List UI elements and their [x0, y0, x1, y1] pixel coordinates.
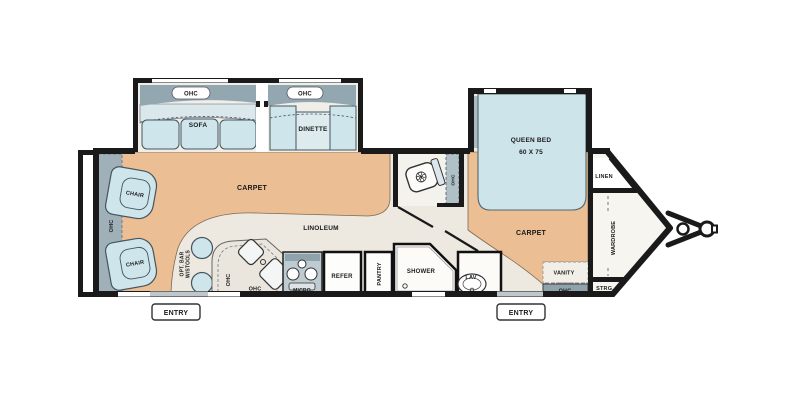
sofa-label: SOFA: [189, 122, 208, 129]
floorplan-drawing: OHC OHC SOFA DINETTE QUEEN BED 60 X 75 L…: [0, 0, 800, 400]
entry-left-label: ENTRY: [164, 310, 189, 317]
dinette-bench-left: [270, 106, 296, 150]
hitch-jack-wheel: [678, 224, 689, 235]
sofa-window: [152, 79, 228, 83]
burner-left: [287, 268, 299, 280]
sofa-cushion-1: [142, 120, 179, 149]
opt-bar-label-group: OPT. BAR W/STOOLS: [180, 249, 192, 278]
refer-label: REFER: [331, 274, 353, 280]
carpet-bedroom-label: CARPET: [516, 230, 547, 237]
dinette-window: [279, 79, 341, 83]
entry-right-doorway: [497, 292, 543, 297]
rear-cap-bottom: [78, 292, 98, 297]
vanity-label: VANITY: [554, 271, 575, 277]
divider-post-2: [264, 101, 268, 107]
burner-small: [298, 260, 306, 268]
ohc-bath-label: OHC: [450, 174, 456, 186]
top-wall-left-segment: [93, 148, 135, 154]
bedroom-partition-wall: [588, 152, 593, 296]
ohc-bath-label-group: OHC: [450, 174, 456, 186]
bar-stool-1: [192, 238, 213, 259]
rear-bumper-bar: [78, 150, 83, 297]
burner-right: [305, 268, 317, 280]
dinette-label: DINETTE: [298, 126, 328, 133]
ohc-dinette-label: OHC: [298, 92, 312, 98]
linen-bottom-wall: [593, 188, 637, 193]
sofa-cushion-3: [220, 120, 256, 149]
queen-bed-size-label: 60 X 75: [519, 149, 543, 156]
ohc-counter-h-label: OHC: [249, 287, 262, 293]
slide-divider-gap: [256, 83, 268, 152]
bath-wall-left: [393, 152, 398, 207]
wardrobe-label: WARDROBE: [611, 221, 617, 255]
divider-post-1: [256, 101, 260, 107]
strg-label: STRG.: [596, 286, 614, 292]
front-slide-wall-right: [358, 78, 363, 152]
ohc-rear-label-group: OHC: [109, 220, 115, 233]
floorplan-canvas: OHC OHC SOFA DINETTE QUEEN BED 60 X 75 L…: [0, 0, 800, 400]
carpet-living-label: CARPET: [237, 185, 268, 192]
hitch-coupler-latch: [712, 226, 717, 233]
bottom-window-1: [118, 292, 150, 297]
bed-window-left: [484, 89, 496, 93]
opt-bar-label-2: W/STOOLS: [186, 249, 192, 278]
dinette-bench-right: [330, 106, 356, 150]
wardrobe-label-group: WARDROBE: [606, 211, 617, 265]
lav-label: LAV: [465, 275, 476, 281]
bath-wall-bottom-stub: [437, 203, 460, 207]
ohc-counter-v-label: OHC: [226, 274, 232, 287]
bottom-window-3: [412, 292, 445, 297]
pantry-label: PANTRY: [377, 262, 383, 285]
pantry-label-group: PANTRY: [377, 262, 383, 285]
top-wall-center-segment: [361, 148, 470, 154]
ohc-bedroom-label: OHC: [559, 289, 572, 295]
entry-right-label: ENTRY: [509, 310, 534, 317]
rear-window-slot: [84, 157, 92, 291]
front-slide-wall-left: [133, 78, 138, 152]
ohc-counter-v-group: OHC: [226, 274, 232, 287]
range-stove: [283, 252, 322, 293]
micro-label: MICRO: [293, 288, 311, 294]
wardrobe-bottom-wall: [593, 277, 624, 282]
queen-bed-label: QUEEN BED: [511, 137, 552, 144]
slide-divider: [256, 83, 268, 152]
bed-window-right: [564, 89, 576, 93]
bed-slide-wall-left: [468, 88, 474, 152]
lavatory: [458, 252, 501, 294]
bath-wall-right: [459, 152, 464, 207]
ohc-sofa-label: OHC: [184, 92, 198, 98]
entry-left-doorway: [150, 292, 208, 297]
ohc-rear-label: OHC: [109, 220, 115, 233]
linen-label: LINEN: [595, 174, 613, 180]
shower-label: SHOWER: [407, 269, 436, 275]
bed-slide-wall-right: [586, 88, 592, 152]
linoleum-label: LINOLEUM: [303, 225, 339, 232]
rear-wall: [93, 148, 99, 297]
refrigerator: [324, 252, 361, 294]
bar-stool-2: [192, 273, 213, 294]
rear-cap-top: [78, 150, 98, 155]
